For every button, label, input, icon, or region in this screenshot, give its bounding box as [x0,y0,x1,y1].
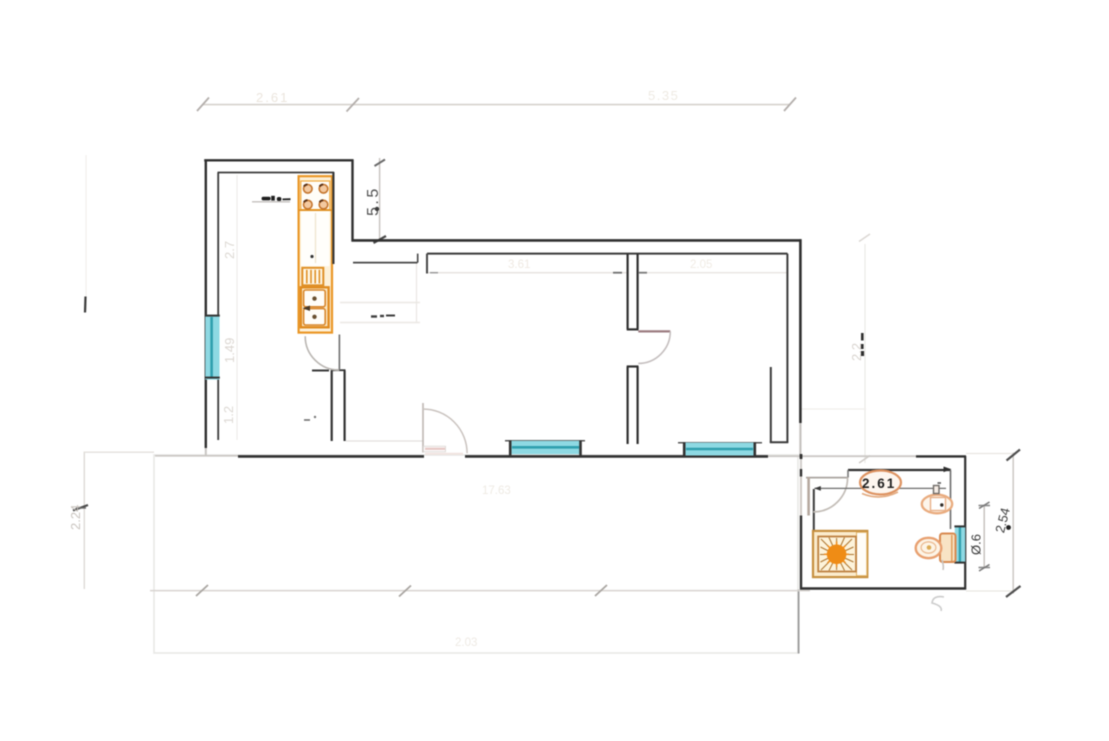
svg-text:17.63: 17.63 [482,485,511,497]
svg-text:2.03: 2.03 [455,637,477,649]
svg-text:5.5: 5.5 [365,186,382,216]
svg-text:2.2: 2.2 [849,343,864,361]
svg-text:2.05: 2.05 [690,259,712,271]
svg-text:2.54: 2.54 [992,506,1013,534]
svg-text:2.61: 2.61 [862,476,896,491]
svg-text:2.7: 2.7 [222,241,237,259]
svg-text:5.35: 5.35 [648,88,679,103]
svg-text:1.49: 1.49 [222,338,237,363]
svg-text:3.61: 3.61 [508,259,530,271]
svg-text:Ø.6: Ø.6 [969,534,984,555]
svg-text:2.61: 2.61 [256,90,289,105]
svg-text:1.2: 1.2 [221,406,236,424]
svg-text:2.24: 2.24 [68,505,83,530]
